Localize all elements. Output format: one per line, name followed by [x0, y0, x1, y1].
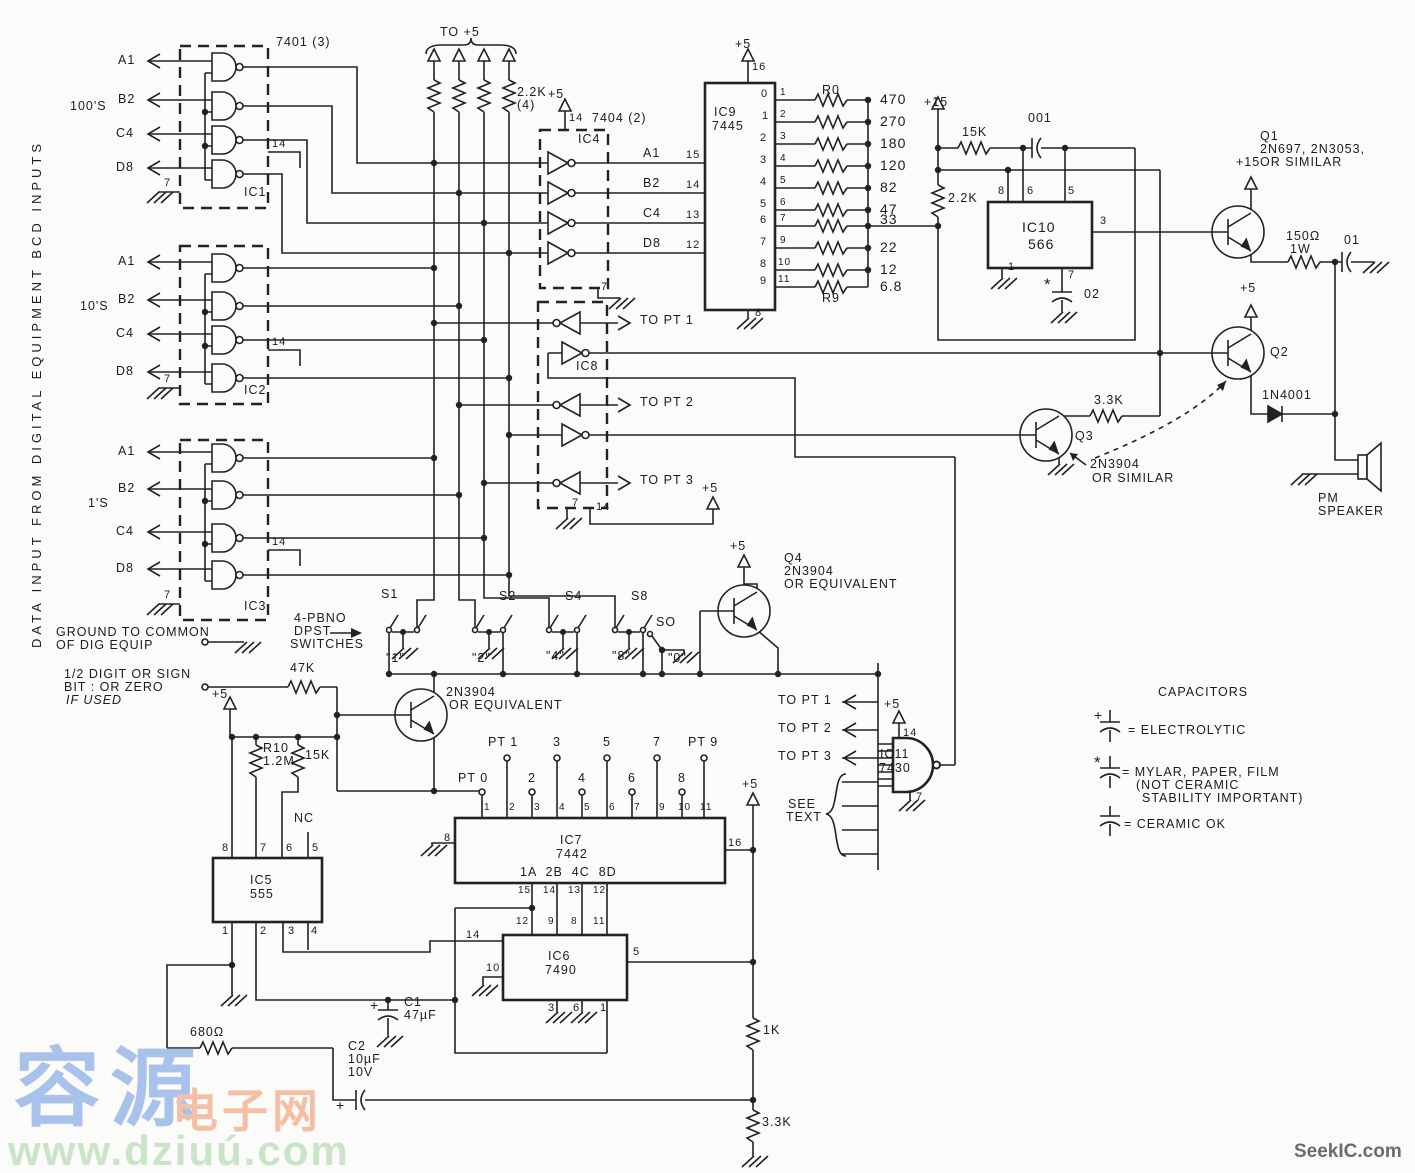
ic4: IC4: [578, 133, 600, 146]
schematic-label: 7: [1068, 270, 1075, 281]
schematic-label: +: [1094, 708, 1103, 722]
schematic-label: 8: [755, 308, 762, 319]
schematic-label: 2: [528, 772, 536, 785]
s1: S1: [381, 588, 398, 601]
schematic-label: 7: [572, 498, 579, 509]
q1: Q1: [1260, 130, 1279, 143]
rv-33: 33: [880, 212, 898, 226]
schematic-label: 3: [553, 736, 561, 749]
schematic-label: 2N3904: [1090, 458, 1140, 471]
schematic-label: "0": [668, 652, 687, 665]
schematic-label: 2: [509, 803, 516, 813]
ic9-part: 7445: [712, 120, 744, 133]
in-d8-1: D8: [116, 562, 134, 575]
schematic-label: 12: [686, 240, 700, 251]
q2: Q2: [1270, 346, 1289, 359]
c-02: 02: [1084, 288, 1100, 301]
schematic-label: 3: [288, 926, 295, 937]
schematic-label: 14: [466, 930, 480, 941]
in-b2-10: B2: [118, 293, 135, 306]
schematic-label: 2N3904: [784, 565, 834, 578]
schematic-label: 7: [164, 590, 171, 601]
schematic-label: 2: [780, 110, 787, 120]
schematic-label: 4: [780, 154, 787, 164]
in-d8-10: D8: [116, 365, 134, 378]
schematic-label: 14: [272, 537, 286, 548]
schematic-label: 6: [286, 843, 293, 854]
schematic-label: +5: [742, 778, 758, 791]
rv-12: 12: [880, 262, 898, 276]
schematic-label: 6: [780, 198, 787, 208]
schematic-label: OR SIMILAR: [1260, 156, 1342, 169]
schematic-label: BIT : OR ZERO: [64, 681, 164, 694]
in-b2-100: B2: [118, 93, 135, 106]
schematic-label: OR EQUIVALENT: [784, 578, 897, 591]
ic10-part: 566: [1028, 237, 1054, 251]
schematic-label: 2N697, 2N3053,: [1260, 143, 1365, 156]
schematic-label: OR EQUIVALENT: [449, 699, 562, 712]
schematic-label: 10: [778, 258, 791, 268]
schematic-label: 8: [222, 843, 229, 854]
in-a1-1: A1: [118, 445, 135, 458]
schematic-label: 5: [1068, 186, 1075, 197]
schematic-label: "2": [472, 652, 491, 665]
rv-120: 120: [880, 158, 906, 172]
schematic-label: 7: [164, 374, 171, 385]
schematic-label: 15: [686, 150, 700, 161]
to-pt2: TO PT 2: [640, 396, 694, 409]
c-01: 01: [1344, 234, 1360, 247]
schematic-label: 8: [444, 833, 451, 844]
watermark-dziuu-url: www.dziuú.com: [8, 1130, 350, 1172]
schematic-label: 10: [486, 963, 500, 974]
schematic-label: 5: [312, 843, 319, 854]
schematic-label: DPST: [294, 625, 331, 638]
schematic-label: = ELECTROLYTIC: [1128, 724, 1246, 737]
schematic-label: +: [370, 998, 379, 1012]
schematic-label: 7: [916, 792, 923, 803]
rv-470: 470: [880, 92, 906, 106]
schematic-label: 7: [601, 282, 608, 293]
schematic-label: 14: [272, 337, 286, 348]
schematic-label: 8: [678, 772, 686, 785]
schematic-label: 3: [534, 803, 541, 813]
part-7404: 7404 (2): [592, 112, 647, 125]
ic1: IC1: [244, 186, 266, 199]
schematic-label: *: [1044, 276, 1052, 293]
group-100s: 100'S: [70, 100, 107, 113]
in-c4-1: C4: [116, 525, 134, 538]
schematic-label: +15: [1236, 156, 1260, 169]
ic9: IC9: [714, 106, 736, 119]
pt1: PT 1: [488, 736, 518, 749]
schematic-label: 7: [634, 803, 641, 813]
schematic-label: 5: [780, 176, 787, 186]
schematic-label: 1: [484, 803, 491, 813]
schematic-label: B2: [643, 177, 660, 190]
schematic-label: 6: [573, 1003, 580, 1014]
schematic-label: +15: [924, 96, 948, 109]
schematic-label: 4: [578, 772, 586, 785]
s8: S8: [631, 590, 648, 603]
so: SO: [656, 616, 676, 629]
schematic-label: 5: [603, 736, 611, 749]
schematic-label: 4: [760, 177, 767, 188]
in-a1-10: A1: [118, 255, 135, 268]
schematic-label: "8": [612, 650, 631, 663]
schematic-label: 3: [760, 155, 767, 166]
ic8: IC8: [576, 360, 598, 373]
schematic-label: +5: [884, 698, 900, 711]
ic11-part: 7430: [879, 762, 911, 775]
ic7-part: 7442: [556, 848, 588, 861]
rv-180: 180: [880, 136, 906, 150]
schematic-label: 9: [548, 917, 555, 927]
schematic-label: +5: [1240, 282, 1256, 295]
schematic-label: 1.2M: [263, 755, 295, 768]
schematic-label: 7: [760, 237, 767, 248]
schematic-label: 1: [762, 111, 769, 122]
rv-68: 6.8: [880, 279, 902, 293]
schematic-label: "1": [386, 652, 405, 665]
legend-title: CAPACITORS: [1158, 686, 1248, 699]
schematic-label: 7: [260, 843, 267, 854]
schematic-label: 12: [593, 886, 606, 896]
r9: R9: [822, 292, 840, 305]
schematic-label: 1: [222, 926, 229, 937]
schematic-label: 3: [548, 1003, 555, 1014]
schematic-label: 16: [752, 62, 766, 73]
ic10: IC10: [1022, 220, 1056, 234]
schematic-label: D8: [643, 237, 661, 250]
schematic-label: 4: [311, 926, 318, 937]
schematic-label: OF DIG EQUIP: [56, 639, 153, 652]
r-15k-b: 15K: [305, 749, 330, 762]
schematic-label: +5: [730, 540, 746, 553]
in-d8-100: D8: [116, 161, 134, 174]
schematic-label: 1/2 DIGIT OR SIGN: [64, 668, 191, 681]
to-pt1: TO PT 1: [640, 314, 694, 327]
q4: Q4: [784, 552, 803, 565]
schematic-label: 12: [516, 917, 529, 927]
r-pullup: 2.2K: [517, 86, 547, 99]
r-150: 150Ω: [1286, 230, 1320, 243]
schematic-label: 6: [628, 772, 636, 785]
schematic-label: 14: [272, 139, 286, 150]
schematic-label: 9: [760, 276, 767, 287]
ic11: IC11: [880, 748, 909, 761]
schematic-label: 6: [1027, 186, 1034, 197]
schematic-label: +5: [548, 88, 564, 101]
r-680: 680Ω: [190, 1026, 224, 1039]
schematic-label: TO PT 2: [778, 722, 832, 735]
schematic-label: TO PT 1: [778, 694, 832, 707]
q3: Q3: [1075, 430, 1094, 443]
schematic-label: 7: [780, 214, 787, 224]
schematic-label: 14: [686, 180, 700, 191]
schematic-label: OR SIMILAR: [1092, 472, 1174, 485]
schematic-label: +5: [702, 482, 718, 495]
ic6-part: 7490: [545, 964, 577, 977]
r-22k: 2.2K: [948, 192, 978, 205]
schematic-label: 14: [543, 886, 556, 896]
s2: S2: [499, 590, 516, 603]
schematic-label: 14: [596, 502, 610, 513]
schematic-label: 3: [780, 132, 787, 142]
schematic-label: +: [336, 1098, 345, 1112]
schematic-label: = CERAMIC OK: [1124, 818, 1226, 831]
schematic-label: 11: [593, 917, 605, 927]
schematic-label: 9: [780, 236, 787, 246]
r10: R10: [263, 742, 289, 755]
schematic-page: 容源 电子网 www.dziuú.com SeekIC.com DATA INP…: [0, 0, 1415, 1173]
schematic-label: SPEAKER: [1318, 505, 1384, 518]
r-1k: 1K: [763, 1024, 780, 1037]
schematic-label: 11: [778, 275, 790, 285]
schematic-label: 0: [761, 89, 768, 100]
r-33k: 3.3K: [1094, 394, 1124, 407]
to-plus5: TO +5: [440, 26, 480, 39]
in-c4-10: C4: [116, 327, 134, 340]
schematic-label: 5: [633, 947, 640, 958]
rv-82: 82: [880, 180, 898, 194]
ic3: IC3: [244, 600, 266, 613]
schematic-label: C4: [643, 207, 661, 220]
schematic-label: TO PT 3: [778, 750, 832, 763]
r-47k: 47K: [290, 662, 315, 675]
ic5: IC5: [250, 874, 272, 887]
bit-bus-wires: [243, 38, 615, 627]
schematic-label: 14: [569, 113, 583, 124]
in-a1-100: A1: [118, 54, 135, 67]
schematic-label: 16: [728, 838, 742, 849]
schematic-label: 7: [653, 736, 661, 749]
schematic-label: 15: [518, 886, 531, 896]
r-15k: 15K: [962, 126, 987, 139]
r0: R0: [822, 84, 840, 97]
schematic-label: SEE: [788, 798, 816, 811]
to-pt3: TO PT 3: [640, 474, 694, 487]
schematic-label: +5: [735, 38, 751, 51]
schematic-label: *: [1094, 754, 1102, 771]
schematic-label: 10V: [348, 1066, 373, 1079]
ic11-wires: [826, 457, 955, 870]
schematic-label: 1: [600, 1003, 607, 1014]
schematic-label: 13: [568, 886, 581, 896]
schematic-label: 4: [559, 803, 566, 813]
schematic-label: 5: [584, 803, 591, 813]
s4: S4: [565, 590, 582, 603]
schematic-label: 5: [760, 199, 767, 210]
schematic-label: NC: [294, 812, 314, 825]
schematic-label: IF USED: [66, 694, 122, 707]
part-7401: 7401 (3): [276, 36, 331, 49]
schematic-label: 8: [760, 259, 767, 270]
schematic-drawing: [0, 0, 1415, 1173]
schematic-label: 4-PBNO: [294, 612, 347, 625]
schematic-label: 11: [700, 803, 712, 813]
ic5-part: 555: [250, 888, 274, 901]
schematic-label: GROUND TO COMMON: [56, 626, 210, 639]
ic-dashed-boxes: [180, 46, 608, 620]
c-001: 001: [1028, 112, 1052, 125]
c1: C1: [404, 996, 422, 1009]
schematic-label: 3: [1100, 216, 1107, 227]
schematic-label: "4": [546, 650, 565, 663]
schematic-label: 13: [686, 210, 700, 221]
schematic-label: = MYLAR, PAPER, FILM: [1122, 766, 1280, 779]
group-1s: 1'S: [88, 497, 109, 510]
schematic-label: 14: [903, 728, 917, 739]
pt0: PT 0: [458, 772, 488, 785]
schematic-label: 1: [1008, 262, 1015, 273]
rv-270: 270: [880, 114, 906, 128]
r-33k-b: 3.3K: [762, 1116, 792, 1129]
in-b2-1: B2: [118, 482, 135, 495]
d-1n4001: 1N4001: [1262, 389, 1312, 402]
schematic-label: 2: [760, 133, 767, 144]
schematic-label: (4): [517, 99, 535, 112]
schematic-label: A1: [643, 147, 660, 160]
rv-22: 22: [880, 240, 898, 254]
schematic-label: 2: [260, 926, 267, 937]
schematic-label: (NOT CERAMIC: [1136, 779, 1239, 792]
q5-type: 2N3904: [446, 686, 496, 699]
schematic-label: 6: [760, 215, 767, 226]
schematic-label: 10µF: [348, 1053, 381, 1066]
ic6: IC6: [548, 950, 570, 963]
schematic-label: 6: [609, 803, 616, 813]
schematic-label: 7: [164, 178, 171, 189]
schematic-label: 8: [571, 917, 578, 927]
schematic-label: +5: [212, 688, 228, 701]
speaker: PM: [1318, 492, 1339, 505]
ic7: IC7: [560, 834, 582, 847]
ic-solid-boxes: [213, 83, 1092, 1000]
schematic-label: 1A 2B 4C 8D: [520, 866, 617, 879]
side-note: DATA INPUT FROM DIGITAL EQUIPMENT BCD IN…: [30, 140, 43, 648]
schematic-label: 47µF: [404, 1009, 437, 1022]
watermark-seekic: SeekIC.com: [1294, 1142, 1402, 1161]
schematic-label: 1: [780, 88, 787, 98]
group-10s: 10'S: [80, 300, 109, 313]
schematic-label: 1W: [1290, 243, 1311, 256]
pt9: PT 9: [688, 736, 718, 749]
schematic-label: TEXT: [786, 811, 822, 824]
schematic-label: 9: [659, 803, 666, 813]
ic2: IC2: [244, 384, 266, 397]
in-c4-100: C4: [116, 127, 134, 140]
schematic-label: 10: [678, 803, 691, 813]
c2: C2: [348, 1040, 366, 1053]
schematic-label: STABILITY IMPORTANT): [1142, 792, 1303, 805]
schematic-label: 8: [998, 186, 1005, 197]
schematic-label: SWITCHES: [290, 638, 364, 651]
